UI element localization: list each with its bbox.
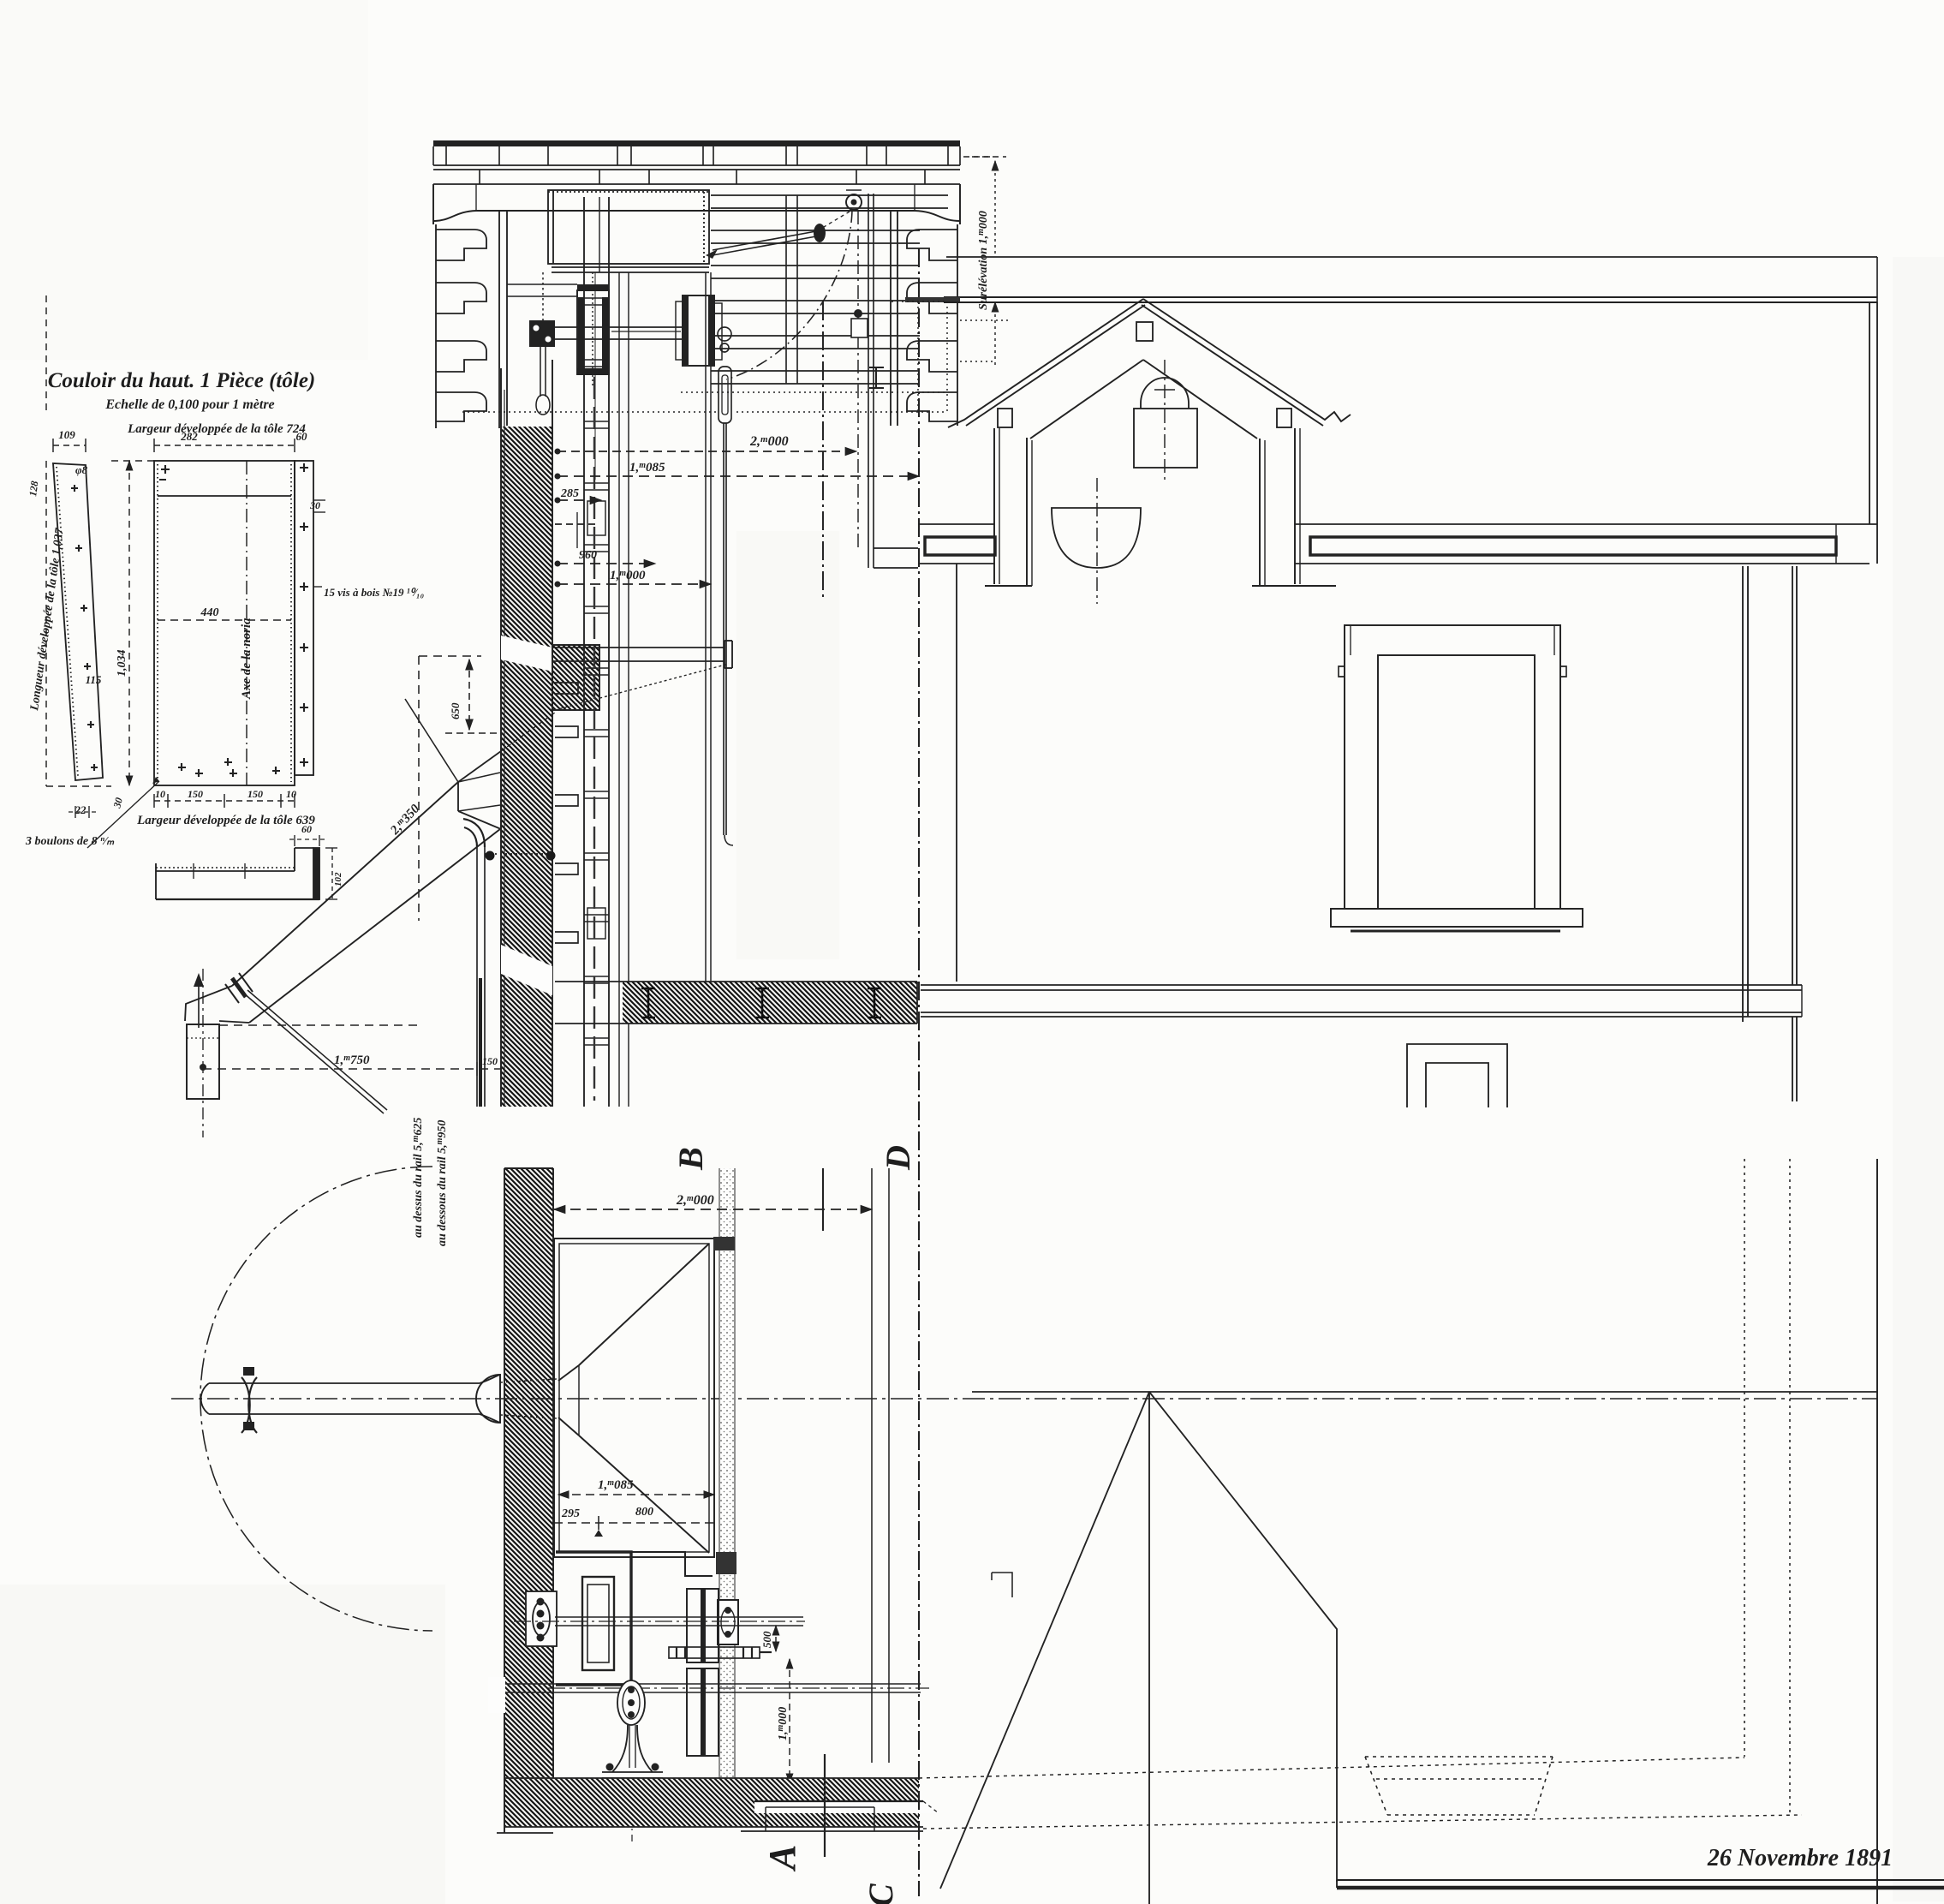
svg-text:500: 500 [760, 1631, 773, 1648]
svg-text:109: 109 [58, 428, 75, 441]
svg-text:3 boulons de 8 ⁿ⁄ₘ: 3 boulons de 8 ⁿ⁄ₘ [25, 835, 115, 848]
svg-text:1,m085: 1,m085 [598, 1478, 634, 1492]
svg-text:Echelle de 0,100 pour 1 mètre: Echelle de 0,100 pour 1 mètre [104, 397, 274, 412]
svg-text:115: 115 [86, 673, 102, 686]
svg-text:B: B [671, 1147, 710, 1171]
svg-text:au dessus du rail 5,m625: au dessus du rail 5,m625 [411, 1118, 425, 1238]
svg-text:10: 10 [286, 788, 296, 800]
svg-text:Surélévation 1,m000: Surélévation 1,m000 [976, 211, 990, 310]
svg-text:D: D [879, 1145, 917, 1171]
svg-text:2,m000: 2,m000 [749, 434, 789, 449]
svg-text:282: 282 [180, 430, 198, 443]
svg-text:22: 22 [75, 803, 87, 816]
svg-text:800: 800 [635, 1506, 653, 1519]
svg-text:15 vis à bois №19 ¹⁰⁄₁₀: 15 vis à bois №19 ¹⁰⁄₁₀ [324, 586, 424, 599]
svg-text:128: 128 [27, 480, 40, 498]
svg-text:102: 102 [333, 872, 343, 886]
svg-text:10: 10 [155, 788, 165, 800]
svg-text:26 Novembre 1891: 26 Novembre 1891 [1707, 1845, 1893, 1871]
svg-text:C: C [862, 1883, 900, 1904]
svg-text:Largeur développée de la tôle: Largeur développée de la tôle 724 [127, 422, 306, 436]
svg-text:1,m085: 1,m085 [629, 461, 665, 475]
svg-text:Axe de la noria: Axe de la noria [240, 618, 253, 700]
svg-text:60: 60 [296, 430, 308, 443]
svg-text:295: 295 [561, 1507, 580, 1520]
svg-text:1,m000: 1,m000 [776, 1707, 790, 1740]
svg-text:285: 285 [560, 487, 579, 500]
svg-text:440: 440 [200, 606, 219, 619]
svg-text:1,m000: 1,m000 [610, 569, 646, 582]
svg-text:A: A [761, 1845, 803, 1872]
svg-text:Largeur développée de la tôle: Largeur développée de la tôle 639 [136, 814, 315, 827]
svg-text:150: 150 [188, 788, 203, 800]
svg-text:150: 150 [247, 788, 263, 800]
svg-text:650: 650 [449, 702, 462, 719]
svg-text:30: 30 [309, 499, 320, 511]
svg-text:φ8: φ8 [75, 463, 88, 476]
svg-text:150: 150 [482, 1055, 498, 1067]
svg-text:960: 960 [579, 549, 597, 562]
svg-text:2,m000: 2,m000 [676, 1193, 714, 1208]
svg-text:1,m750: 1,m750 [334, 1053, 370, 1067]
svg-text:Couloir du haut. 1 Pièce (tôl: Couloir du haut. 1 Pièce (tôle) [48, 369, 316, 392]
svg-text:60: 60 [301, 823, 312, 835]
svg-text:1,034: 1,034 [116, 650, 128, 677]
